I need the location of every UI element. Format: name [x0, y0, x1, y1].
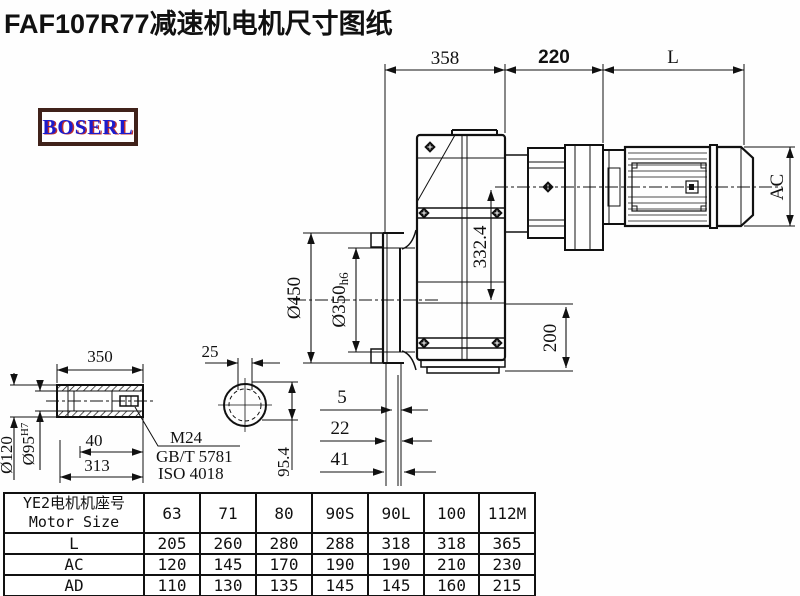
dim-label-200: 200 [540, 324, 561, 353]
dim-label-41: 41 [331, 449, 350, 470]
bolt-icon [492, 338, 502, 348]
fan-cover [717, 147, 753, 226]
dim-label-350-suffix: h6 [336, 272, 351, 286]
cell: 145 [312, 575, 368, 596]
cell: 110 [144, 575, 200, 596]
dim-label-450: Ø450 [284, 277, 305, 319]
cell: 190 [312, 554, 368, 575]
table-header-label: YE2电机机座号 Motor Size [4, 493, 144, 533]
cell: 120 [144, 554, 200, 575]
table-row: AD 110 130 135 145 145 160 215 [4, 575, 535, 596]
dim-label-220: 220 [538, 47, 570, 68]
cell: 210 [424, 554, 479, 575]
cell: 190 [368, 554, 424, 575]
shaft-section-circle [218, 358, 272, 432]
col-header: 80 [256, 493, 312, 533]
dim-label-25: 25 [202, 342, 219, 361]
dim-label-954: 95.4 [274, 447, 293, 477]
dim-label-358: 358 [431, 48, 460, 69]
shaft-detail-labels: 350 25 Ø120 Ø95H7 40 313 95.4 M24 GB/T 5… [0, 342, 293, 483]
table-header-cn: YE2电机机座号 [5, 494, 143, 513]
cell: 288 [312, 533, 368, 554]
cell: 230 [479, 554, 535, 575]
table-row: L 205 260 280 288 318 318 365 [4, 533, 535, 554]
row-label: AC [4, 554, 144, 575]
cell: 145 [200, 554, 256, 575]
col-header: 63 [144, 493, 200, 533]
dim-label-332: 332.4 [470, 225, 491, 268]
cell: 170 [256, 554, 312, 575]
drawing-page: FAF107R77减速机电机尺寸图纸 BOSERL [0, 0, 800, 596]
cell: 318 [424, 533, 479, 554]
cell: 280 [256, 533, 312, 554]
table-row: AC 120 145 170 190 190 210 230 [4, 554, 535, 575]
cell: 365 [479, 533, 535, 554]
col-header: 71 [200, 493, 256, 533]
dim-label-350-main: Ø350 [329, 285, 350, 327]
dim-label-350h6: Ø350h6 [329, 272, 351, 328]
cell: 215 [479, 575, 535, 596]
bolt-icon [492, 208, 502, 218]
motor-size-table: YE2电机机座号 Motor Size 63 71 80 90S 90L 100… [3, 492, 536, 596]
cell: 260 [200, 533, 256, 554]
cell: 145 [368, 575, 424, 596]
row-label: AD [4, 575, 144, 596]
col-header: 112M [479, 493, 535, 533]
dim-label-AC: AC [767, 174, 788, 200]
col-header: 90S [312, 493, 368, 533]
gearbox-housing [417, 130, 505, 373]
note-std2: ISO 4018 [158, 464, 224, 483]
dim-label-L: L [667, 47, 679, 68]
motor [603, 145, 753, 228]
col-header: 100 [424, 493, 479, 533]
bolt-icon [419, 338, 429, 348]
cell: 205 [144, 533, 200, 554]
cell: 318 [368, 533, 424, 554]
bolt-icon [425, 142, 435, 152]
cell: 160 [424, 575, 479, 596]
dim-label-120: Ø120 [0, 436, 16, 474]
table-header-en: Motor Size [5, 513, 143, 532]
bolt-icon [419, 208, 429, 218]
note-thread: M24 [170, 428, 203, 447]
dim-label-95-sup: H7 [19, 422, 31, 436]
dim-label-5: 5 [337, 387, 347, 408]
dimension-labels: 358 220 L AC Ø450 Ø350h6 332.4 200 5 22 … [284, 47, 788, 470]
cell: 135 [256, 575, 312, 596]
dim-label-22: 22 [331, 418, 350, 439]
cell: 130 [200, 575, 256, 596]
centerlines [293, 187, 782, 300]
dim-label-313: 313 [84, 456, 110, 475]
table-header-row: YE2电机机座号 Motor Size 63 71 80 90S 90L 100… [4, 493, 535, 533]
row-label: L [4, 533, 144, 554]
dim-label-95H7: Ø95H7 [19, 422, 38, 465]
dim-label-s350: 350 [87, 347, 113, 366]
extension-lines [303, 64, 795, 486]
col-header: 90L [368, 493, 424, 533]
dim-label-40: 40 [86, 431, 103, 450]
dim-label-95-main: Ø95 [19, 436, 38, 465]
